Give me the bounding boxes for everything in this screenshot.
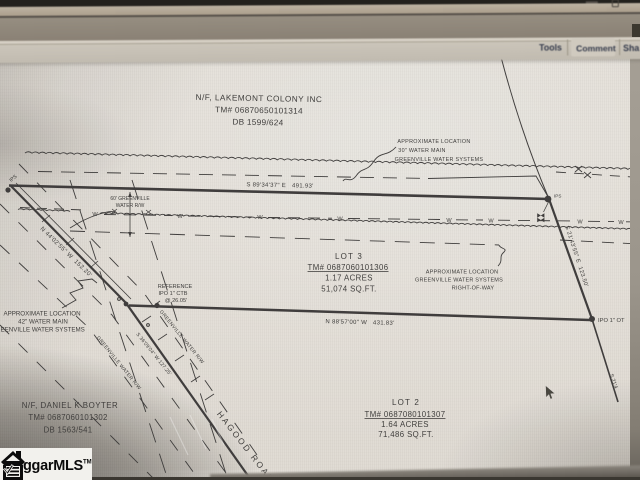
svg-text:LOT 2: LOT 2 <box>392 398 420 407</box>
svg-text:W: W <box>257 215 263 221</box>
svg-text:IPS: IPS <box>8 173 19 183</box>
svg-text:W: W <box>92 212 98 218</box>
svg-text:TM# 06870650101314: TM# 06870650101314 <box>215 105 303 116</box>
svg-text:W: W <box>446 218 452 224</box>
svg-text:WATER R/W: WATER R/W <box>116 203 145 209</box>
svg-text:N 88'57'00" W 431.83': N 88'57'00" W 431.83' <box>325 319 394 327</box>
svg-text:30" WATER MAIN: 30" WATER MAIN <box>398 148 445 154</box>
svg-text:LOT 3: LOT 3 <box>335 252 363 261</box>
svg-text:RIGHT-OF-WAY: RIGHT-OF-WAY <box>452 286 495 292</box>
svg-text:W: W <box>337 217 343 223</box>
svg-text:N/F, DANIEL K BOYTER: N/F, DANIEL K BOYTER <box>22 401 119 410</box>
svg-text:TM# 0687080101307: TM# 0687080101307 <box>365 410 446 419</box>
svg-text:51,074 SQ.FT.: 51,074 SQ.FT. <box>321 285 376 294</box>
svg-text:1.64 ACRES: 1.64 ACRES <box>381 420 429 429</box>
svg-text:W: W <box>577 220 583 226</box>
svg-text:S 21'4: S 21'4 <box>608 373 619 389</box>
svg-text:60' GREENVILLE: 60' GREENVILLE <box>110 196 150 202</box>
svg-text:REFERENCE: REFERENCE <box>158 284 193 290</box>
svg-text:APPROXIMATE LOCATION: APPROXIMATE LOCATION <box>426 270 499 276</box>
svg-text:1.17 ACRES: 1.17 ACRES <box>325 274 373 283</box>
svg-text:IPO 1" CTB: IPO 1" CTB <box>158 291 187 297</box>
svg-text:DB 1599/624: DB 1599/624 <box>232 118 283 128</box>
svg-text:71,486 SQ.FT.: 71,486 SQ.FT. <box>378 430 433 439</box>
svg-text:DB 1563/541: DB 1563/541 <box>44 426 93 435</box>
svg-text:APPROXIMATE LOCATION: APPROXIMATE LOCATION <box>3 311 80 318</box>
svg-text:W: W <box>618 220 624 226</box>
svg-text:APPROXIMATE LOCATION: APPROXIMATE LOCATION <box>397 139 470 145</box>
svg-text:S 89'34'37" E 491.93': S 89'34'37" E 491.93' <box>246 182 313 189</box>
svg-text:GREENVILLE WATER SYSTEMS: GREENVILLE WATER SYSTEMS <box>415 278 503 284</box>
svg-text:TM# 0687060101302: TM# 0687060101302 <box>28 413 107 422</box>
svg-text:GREENVILLE WATER R/W: GREENVILLE WATER R/W <box>95 335 142 391</box>
svg-text:IPS: IPS <box>554 194 561 199</box>
svg-text:W: W <box>177 214 183 220</box>
svg-text:N/F, LAKEMONT COLONY INC: N/F, LAKEMONT COLONY INC <box>196 93 323 104</box>
svg-text:42" WATER MAIN: 42" WATER MAIN <box>18 319 68 326</box>
svg-text:GREENVILLE WATER SYSTEMS: GREENVILLE WATER SYSTEMS <box>395 157 484 163</box>
svg-text:IPO 1" OT: IPO 1" OT <box>598 318 625 324</box>
svg-text:S 21'43'55" E 123.50': S 21'43'55" E 123.50' <box>563 225 589 288</box>
svg-text:W: W <box>488 219 494 225</box>
svg-text:S 36'09'04" W 127.25': S 36'09'04" W 127.25' <box>134 332 172 377</box>
svg-text:@ 26.05': @ 26.05' <box>165 298 187 304</box>
svg-text:GREENVILLE WATER SYSTEMS: GREENVILLE WATER SYSTEMS <box>0 327 85 334</box>
svg-text:TM# 0687060101306: TM# 0687060101306 <box>308 263 389 272</box>
